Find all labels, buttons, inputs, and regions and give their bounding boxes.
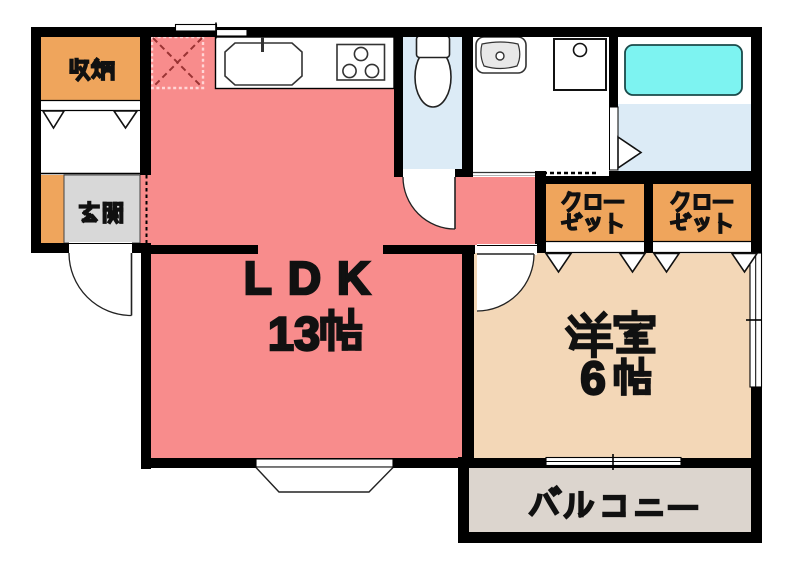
svg-text:LDK: LDK bbox=[244, 252, 387, 304]
svg-text:13: 13 bbox=[268, 307, 320, 360]
svg-text:6: 6 bbox=[580, 352, 606, 404]
